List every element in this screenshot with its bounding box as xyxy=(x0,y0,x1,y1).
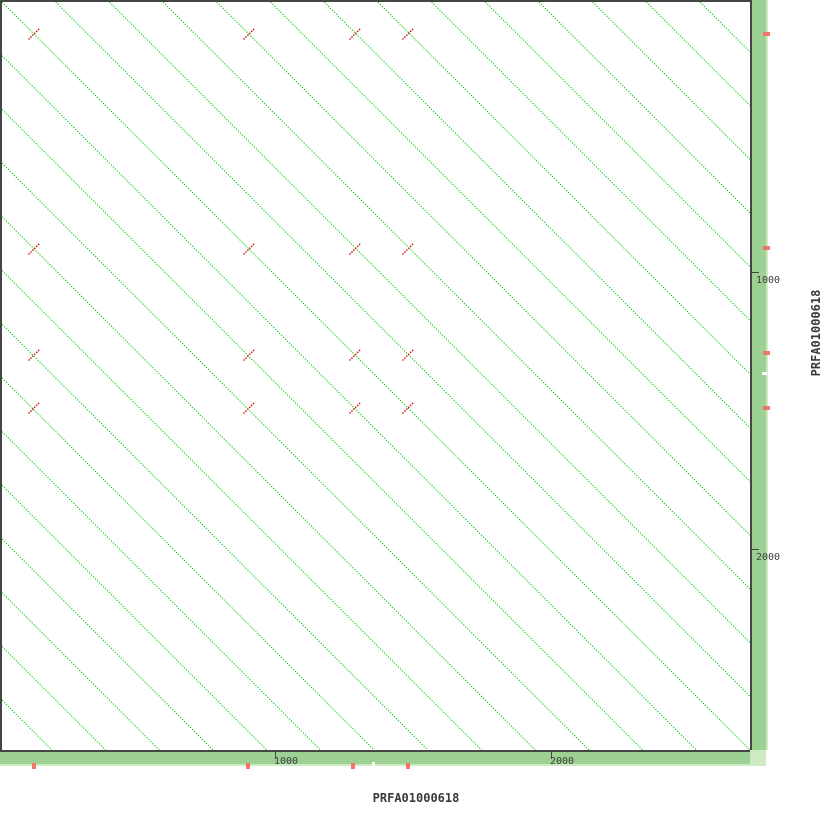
inverted-match-mark xyxy=(244,403,255,414)
forward-match-diagonal xyxy=(217,2,750,535)
inverted-match-mark xyxy=(244,350,255,361)
forward-match-diagonal xyxy=(2,378,374,750)
forward-match-diagonal xyxy=(378,2,750,374)
dotplot-canvas[interactable] xyxy=(0,0,752,752)
corner-block xyxy=(750,750,766,766)
forward-match-diagonal xyxy=(2,485,267,750)
forward-match-diagonal xyxy=(2,432,320,750)
x-bar-feature-marker xyxy=(351,763,355,769)
forward-match-diagonal xyxy=(432,2,750,320)
x-bar-feature-marker xyxy=(406,763,410,769)
forward-match-diagonal xyxy=(2,593,159,750)
forward-match-diagonal xyxy=(2,539,213,750)
forward-match-diagonal xyxy=(646,2,750,106)
inverted-match-mark xyxy=(29,403,40,414)
forward-match-diagonal xyxy=(56,2,750,696)
x-axis-tick-label: 1000 xyxy=(274,757,298,767)
y-axis-tick-label: 1000 xyxy=(756,276,780,286)
y-bar-feature-marker xyxy=(763,406,770,410)
y-axis-sequence-label: PRFA01000618 xyxy=(809,273,823,393)
inverted-match-mark xyxy=(350,244,361,255)
dotplot-matches-layer xyxy=(2,2,750,750)
dotplot-window: 10002000 10002000 PRFA01000618 PRFA01000… xyxy=(0,0,830,830)
x-bar-feature-marker xyxy=(32,763,36,769)
forward-match-diagonal xyxy=(163,2,750,589)
forward-match-diagonal xyxy=(271,2,751,482)
x-bar-feature-marker xyxy=(246,763,250,769)
forward-match-diagonal xyxy=(2,324,428,750)
x-axis-tick-label: 2000 xyxy=(550,757,574,767)
forward-match-diagonal xyxy=(2,700,52,750)
y-bar-feature-marker xyxy=(763,246,770,250)
inverted-match-mark xyxy=(403,244,414,255)
y-sequence-bar[interactable] xyxy=(752,0,768,750)
forward-match-diagonal xyxy=(700,2,750,52)
forward-match-diagonal xyxy=(2,646,106,750)
forward-match-diagonal xyxy=(593,2,750,159)
y-bar-white-tick xyxy=(762,372,767,375)
y-axis-tick xyxy=(752,272,759,273)
y-bar-feature-marker xyxy=(763,32,770,36)
x-sequence-bar[interactable] xyxy=(0,752,750,766)
y-bar-feature-marker xyxy=(763,351,770,355)
forward-match-diagonal xyxy=(2,2,750,750)
forward-match-diagonal xyxy=(539,2,750,213)
forward-match-diagonal xyxy=(2,271,482,751)
x-bar-white-tick xyxy=(372,762,375,767)
forward-match-diagonal xyxy=(2,163,589,750)
forward-match-diagonal xyxy=(109,2,750,643)
forward-match-diagonal xyxy=(2,109,643,750)
inverted-match-mark xyxy=(350,29,361,40)
inverted-match-mark xyxy=(29,350,40,361)
forward-match-diagonal xyxy=(2,217,535,750)
inverted-match-mark xyxy=(403,29,414,40)
forward-match-diagonal xyxy=(324,2,750,428)
x-axis-sequence-label: PRFA01000618 xyxy=(356,791,476,805)
inverted-match-mark xyxy=(244,244,255,255)
forward-match-diagonal xyxy=(2,56,696,750)
y-axis-tick xyxy=(752,549,759,550)
forward-match-diagonal xyxy=(485,2,750,267)
y-axis-tick-label: 2000 xyxy=(756,553,780,563)
